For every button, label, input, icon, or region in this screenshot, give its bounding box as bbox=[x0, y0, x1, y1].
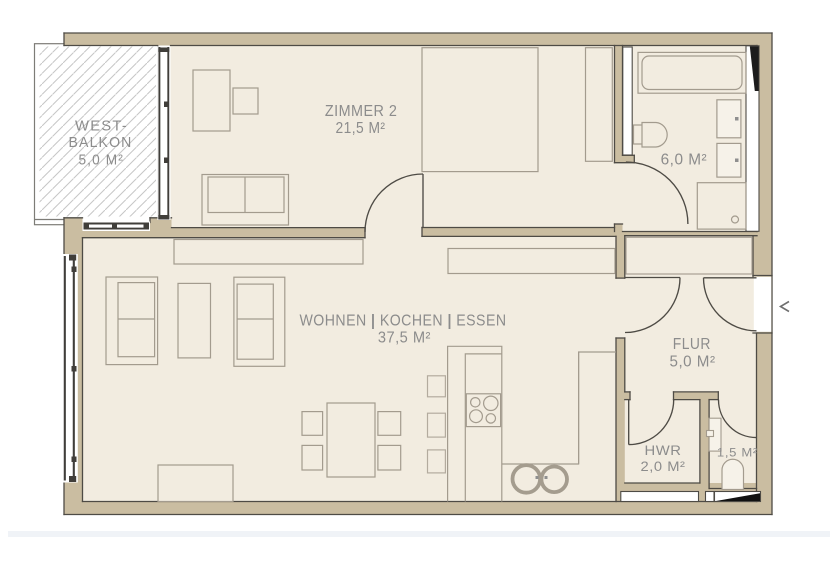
svg-text:2,0 M²: 2,0 M² bbox=[641, 459, 686, 474]
svg-text:6,0 M²: 6,0 M² bbox=[661, 152, 708, 169]
svg-text:1,5 M²: 1,5 M² bbox=[717, 445, 758, 459]
svg-text:21,5 M²: 21,5 M² bbox=[336, 120, 386, 137]
svg-text:BALKON: BALKON bbox=[69, 135, 133, 151]
svg-text:5,0 M²: 5,0 M² bbox=[670, 354, 716, 371]
svg-text:HWR: HWR bbox=[645, 443, 682, 458]
svg-text:5,0 M²: 5,0 M² bbox=[78, 152, 124, 168]
svg-text:WEST-: WEST- bbox=[75, 119, 128, 135]
svg-text:ZIMMER 2: ZIMMER 2 bbox=[325, 103, 398, 120]
svg-text:37,5 M²: 37,5 M² bbox=[378, 330, 431, 347]
svg-text:WOHNEN | KOCHEN | ESSEN: WOHNEN | KOCHEN | ESSEN bbox=[300, 313, 507, 330]
svg-text:FLUR: FLUR bbox=[673, 336, 711, 353]
